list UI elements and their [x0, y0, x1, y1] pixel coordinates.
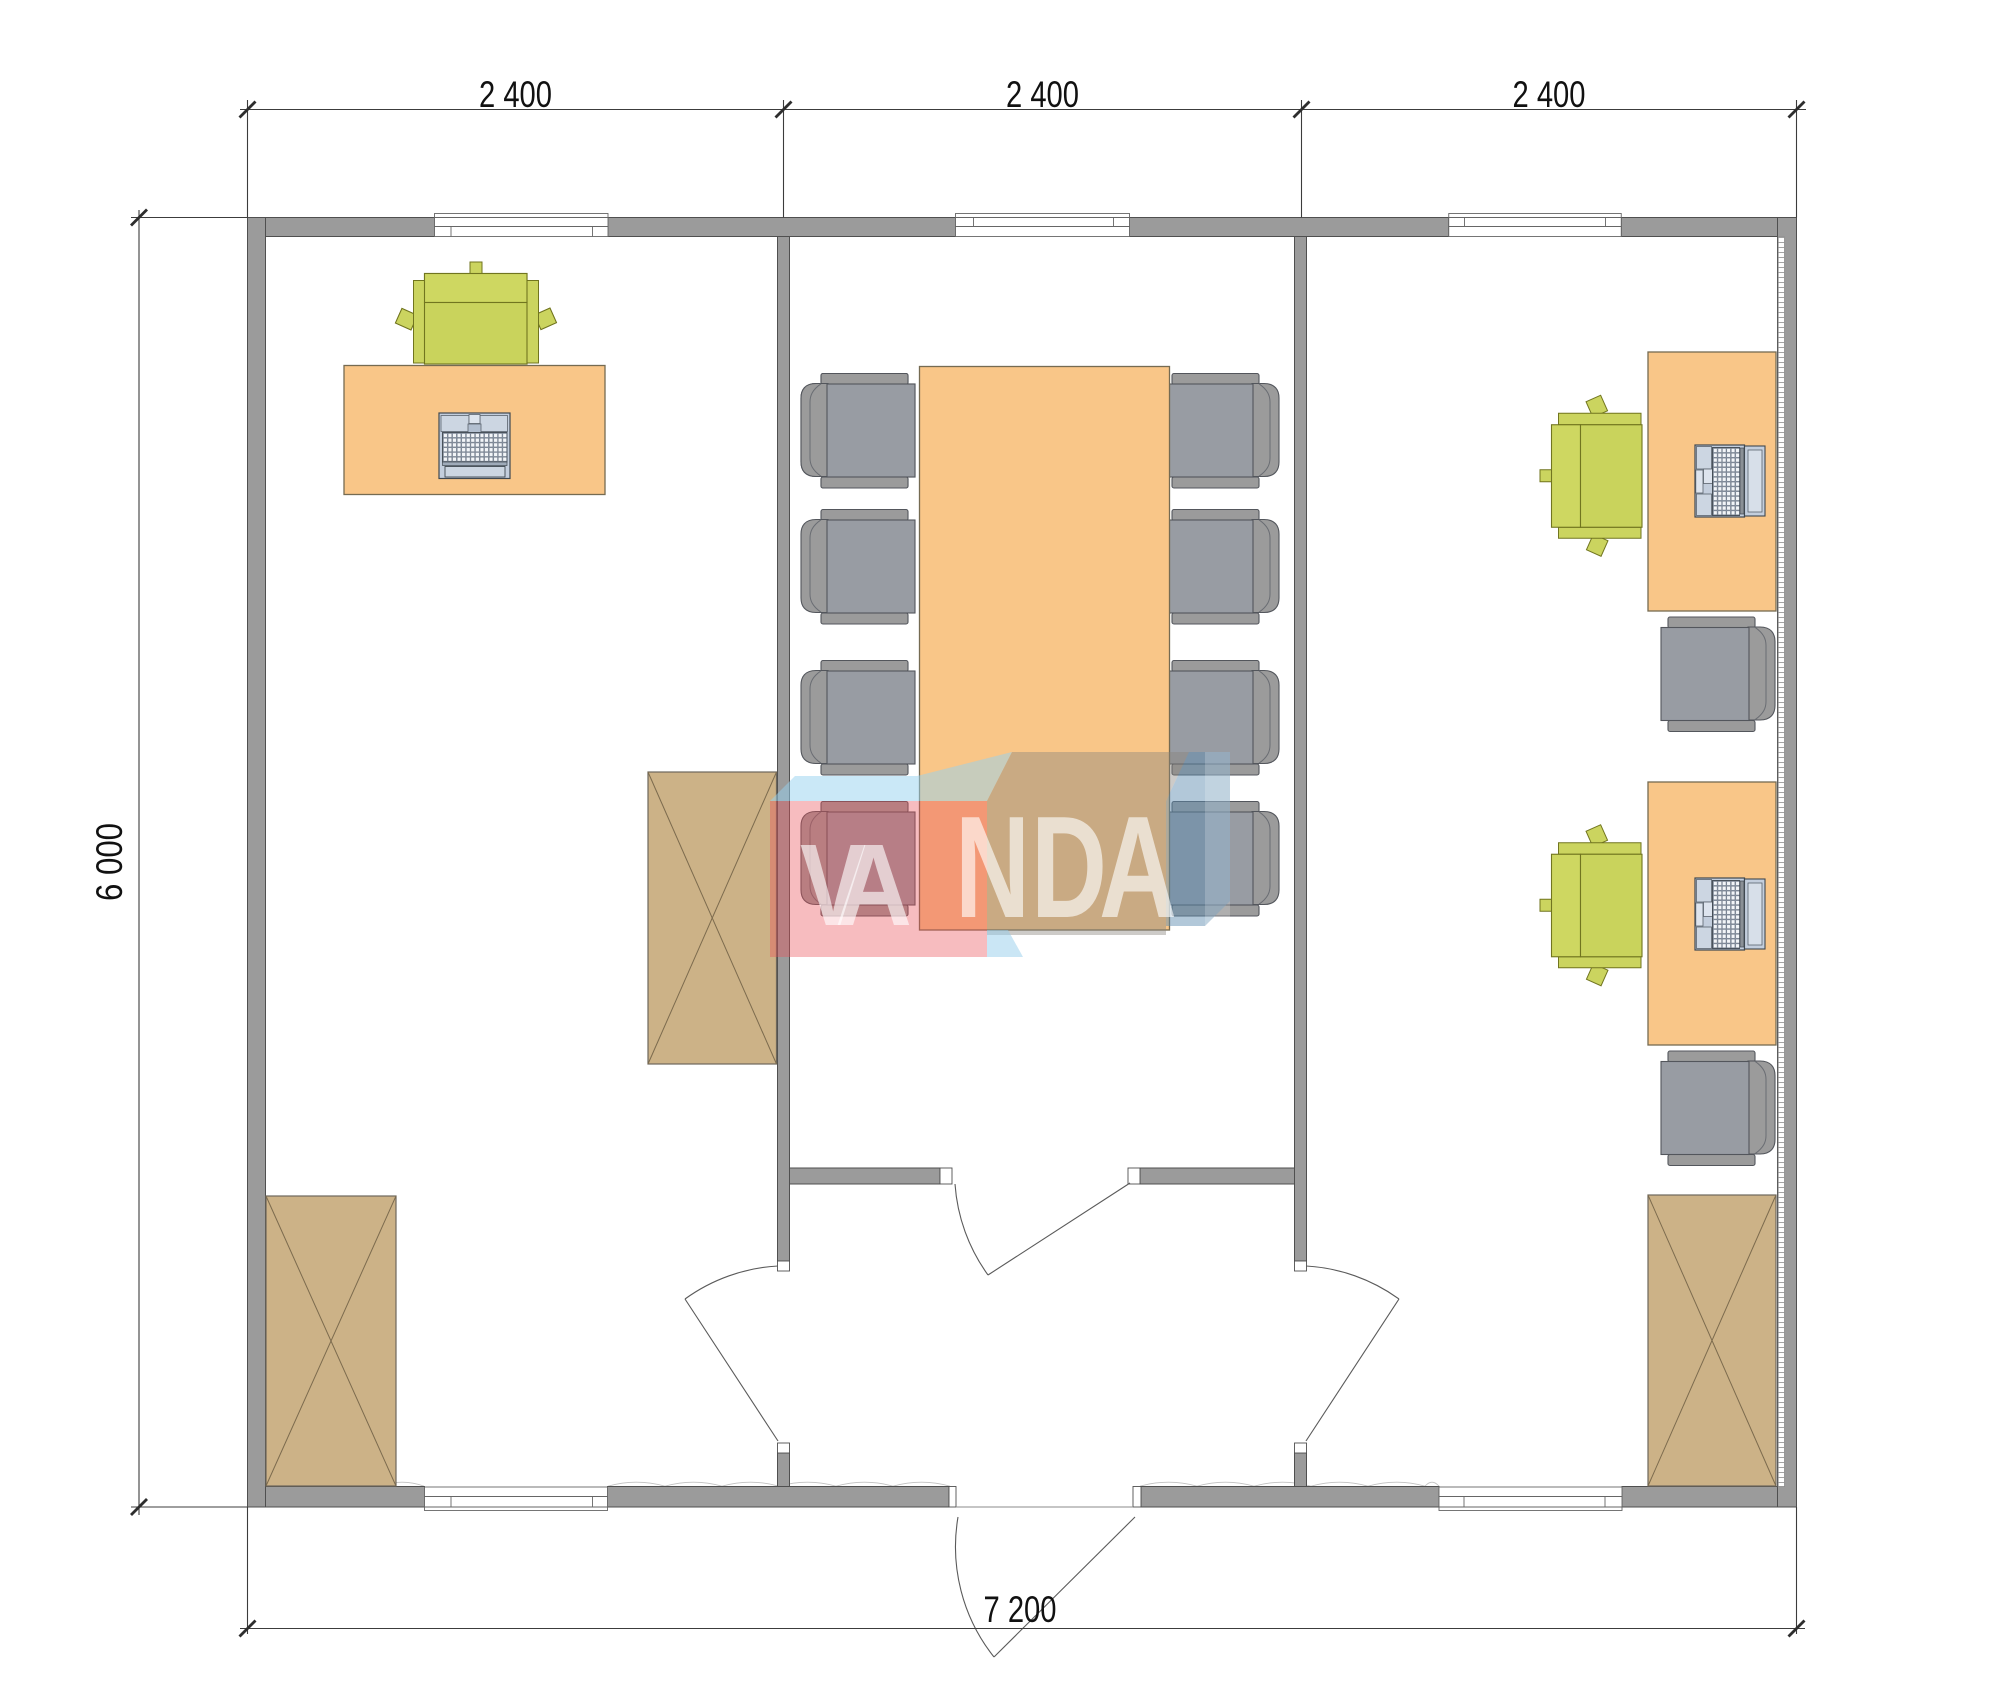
svg-text:6 000: 6 000	[89, 823, 130, 901]
svg-text:7 200: 7 200	[984, 1589, 1057, 1630]
svg-text:A: A	[835, 820, 912, 950]
svg-text:2 400: 2 400	[1513, 74, 1586, 115]
svg-text:D: D	[1031, 786, 1107, 948]
svg-text:N: N	[955, 786, 1030, 948]
svg-text:2 400: 2 400	[1006, 74, 1079, 115]
svg-text:2 400: 2 400	[479, 74, 552, 115]
svg-text:A: A	[1099, 786, 1177, 948]
